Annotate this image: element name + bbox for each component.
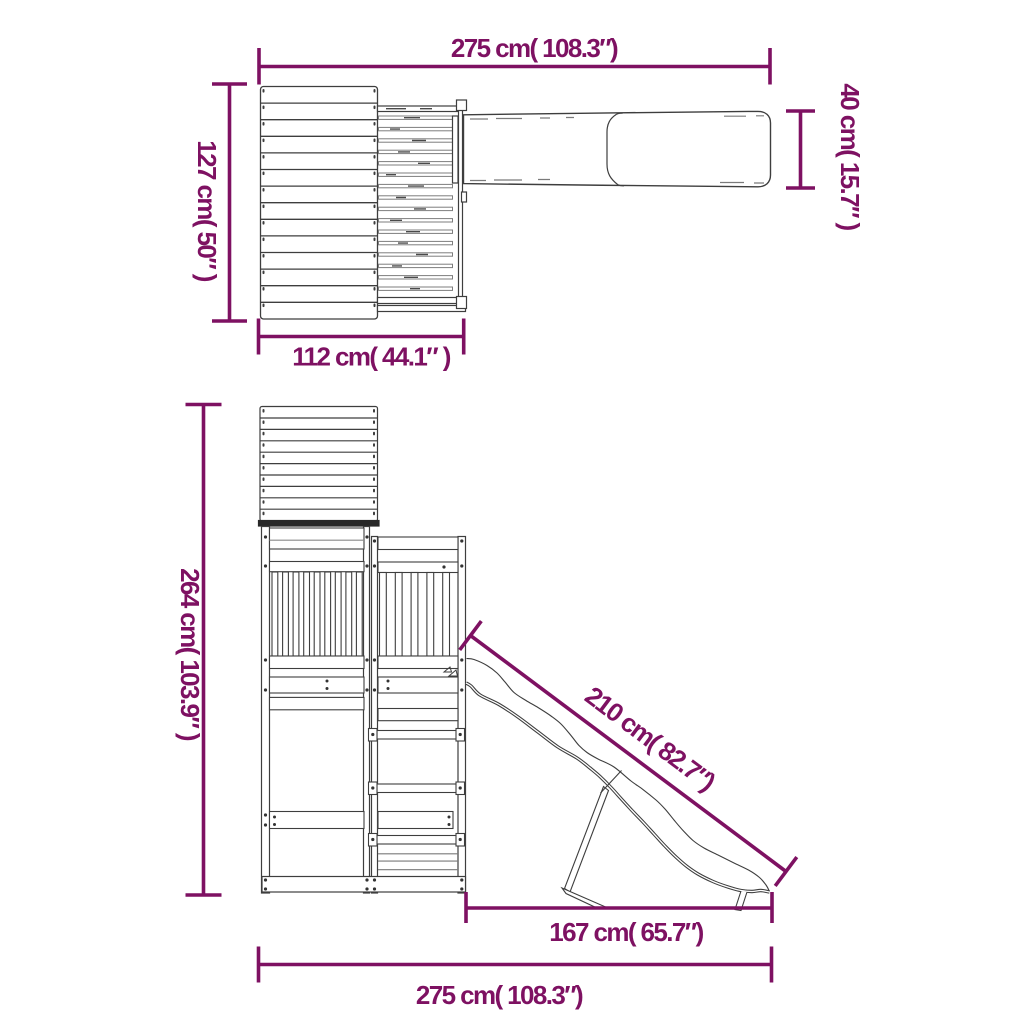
svg-text:275 cm( 108.3″): 275 cm( 108.3″) [416,980,583,1010]
svg-text:264 cm( 103.9″ ): 264 cm( 103.9″ ) [175,568,205,741]
svg-text:127 cm( 50″ ): 127 cm( 50″ ) [192,140,222,281]
svg-text:275 cm( 108.3″): 275 cm( 108.3″) [451,33,618,63]
svg-text:167 cm( 65.7″): 167 cm( 65.7″) [549,917,703,947]
svg-text:112 cm( 44.1″ ): 112 cm( 44.1″ ) [292,342,451,372]
svg-text:40 cm( 15.7″ ): 40 cm( 15.7″ ) [835,83,865,230]
